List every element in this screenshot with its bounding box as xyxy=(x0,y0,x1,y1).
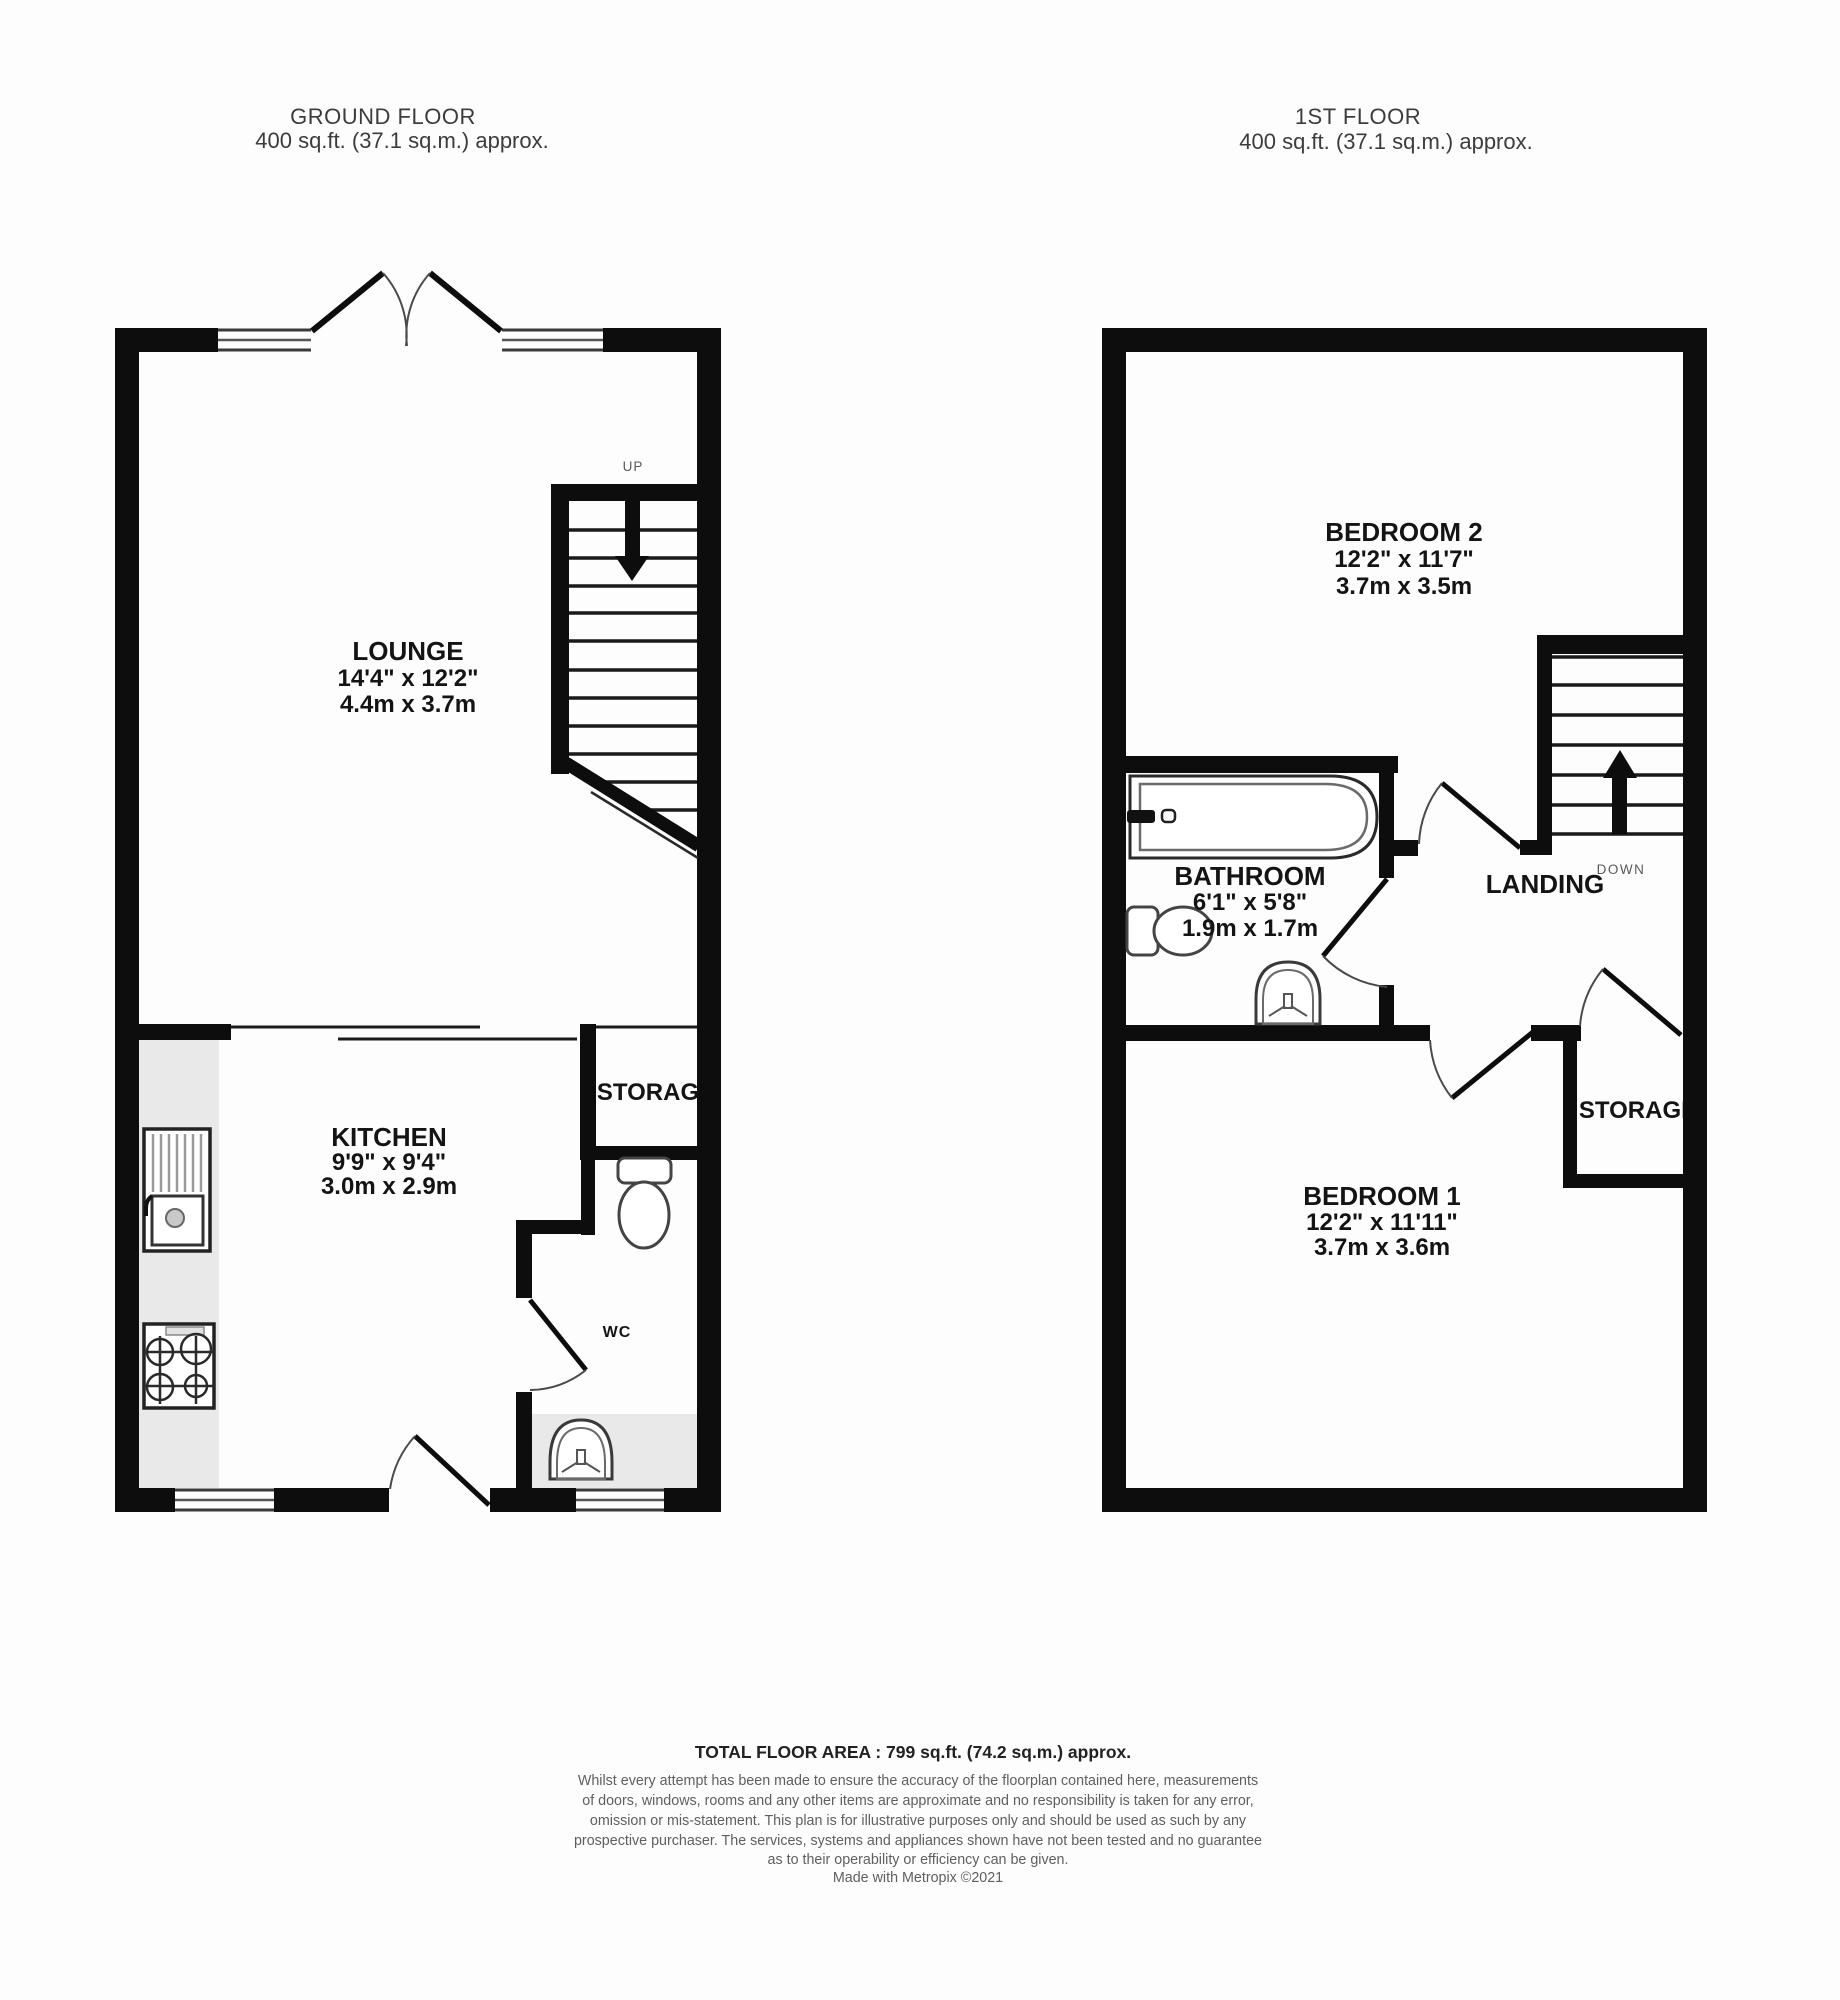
svg-text:BEDROOM 1: BEDROOM 1 xyxy=(1303,1181,1460,1211)
svg-text:1.9m x 1.7m: 1.9m x 1.7m xyxy=(1182,915,1318,942)
svg-text:400 sq.ft. (37.1 sq.m.) approx: 400 sq.ft. (37.1 sq.m.) approx. xyxy=(255,128,548,153)
svg-text:Made with Metropix ©2021: Made with Metropix ©2021 xyxy=(833,1870,1003,1886)
svg-text:BEDROOM 2: BEDROOM 2 xyxy=(1325,517,1482,547)
svg-text:KITCHEN: KITCHEN xyxy=(331,1122,447,1152)
svg-text:GROUND FLOOR: GROUND FLOOR xyxy=(290,104,476,129)
svg-text:as to their operability or eff: as to their operability or efficiency ca… xyxy=(768,1852,1069,1868)
svg-text:12'2" x 11'11": 12'2" x 11'11" xyxy=(1306,1209,1458,1236)
svg-text:3.7m x 3.6m: 3.7m x 3.6m xyxy=(1314,1234,1450,1261)
svg-text:LANDING: LANDING xyxy=(1486,869,1604,899)
svg-text:LOUNGE: LOUNGE xyxy=(352,636,463,666)
svg-text:1ST FLOOR: 1ST FLOOR xyxy=(1295,104,1421,129)
svg-text:prospective purchaser. The ser: prospective purchaser. The services, sys… xyxy=(574,1833,1262,1849)
svg-text:6'1" x 5'8": 6'1" x 5'8" xyxy=(1193,889,1307,916)
svg-text:12'2" x 11'7": 12'2" x 11'7" xyxy=(1334,546,1474,573)
svg-text:9'9" x 9'4": 9'9" x 9'4" xyxy=(332,1149,446,1176)
svg-text:WC: WC xyxy=(603,1324,632,1341)
svg-text:STORAGE: STORAGE xyxy=(1579,1097,1697,1124)
svg-text:omission or mis-statement. Thi: omission or mis-statement. This plan is … xyxy=(590,1813,1247,1829)
svg-text:3.0m x 2.9m: 3.0m x 2.9m xyxy=(321,1173,457,1200)
svg-text:BATHROOM: BATHROOM xyxy=(1174,861,1325,891)
svg-text:3.7m x 3.5m: 3.7m x 3.5m xyxy=(1336,573,1472,600)
svg-text:UP: UP xyxy=(623,459,644,474)
svg-text:4.4m x 3.7m: 4.4m x 3.7m xyxy=(340,691,476,718)
svg-text:of doors, windows, rooms and a: of doors, windows, rooms and any other i… xyxy=(582,1793,1254,1809)
svg-text:14'4" x 12'2": 14'4" x 12'2" xyxy=(338,665,479,692)
svg-text:TOTAL FLOOR AREA : 799 sq.ft.: TOTAL FLOOR AREA : 799 sq.ft. (74.2 sq.m… xyxy=(695,1742,1131,1762)
svg-text:Whilst every attempt has been: Whilst every attempt has been made to en… xyxy=(578,1773,1258,1789)
svg-text:400 sq.ft. (37.1 sq.m.) approx: 400 sq.ft. (37.1 sq.m.) approx. xyxy=(1239,129,1532,154)
